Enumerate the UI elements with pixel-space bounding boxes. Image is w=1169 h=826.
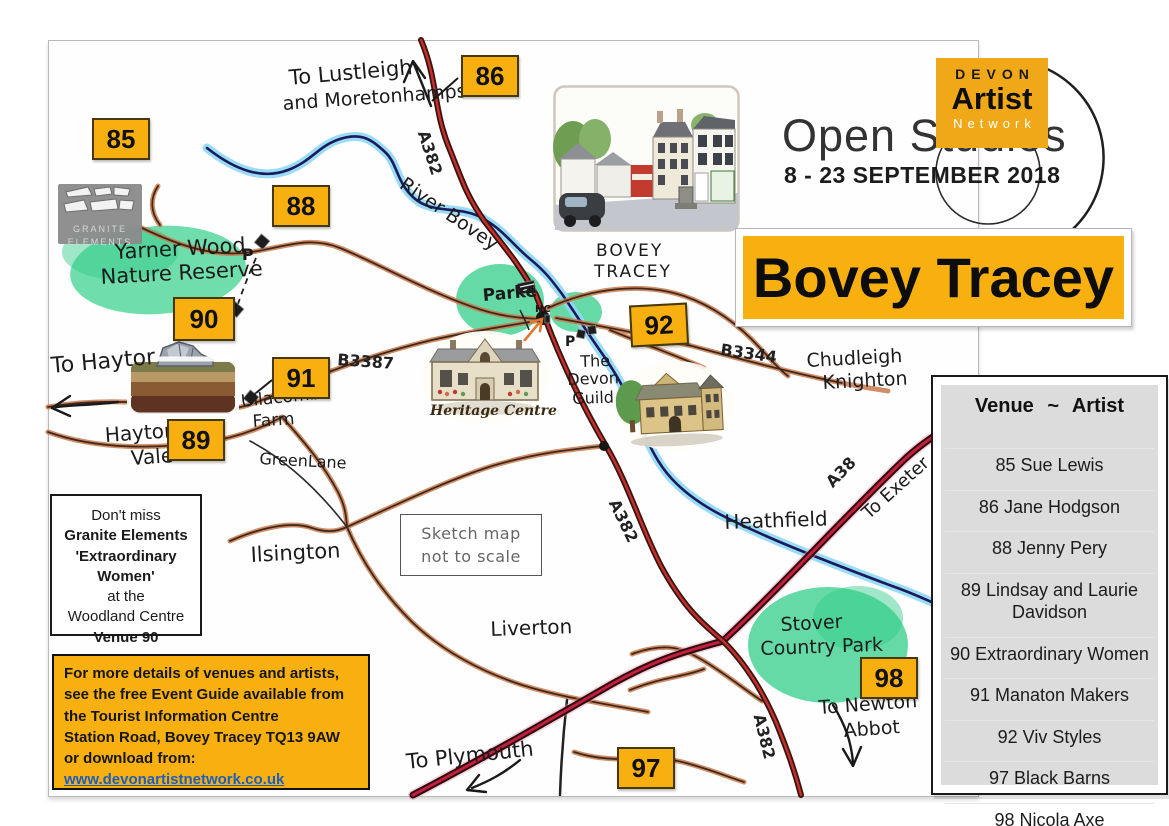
event-dates: 8 - 23 SEPTEMBER 2018 [784,162,1060,189]
label-farm: Farm [252,409,295,432]
venue-marker-90: 90 [173,297,235,341]
label-parking-guild: P [565,334,575,350]
venue-row-98: 98 Nicola Axe [945,803,1154,826]
dont-miss-line1: Don't miss [52,506,200,526]
venue-row-97: 97 Black Barns [945,761,1154,790]
label-hc: HC [535,304,551,315]
label-ilsington: Ilsington [250,538,341,567]
artist-network-badge: DEVON Artist Network [936,58,1048,148]
note-line2: not to scale [421,545,521,568]
town-banner-inner: Bovey Tracey [743,236,1124,319]
devon-artist-network-link[interactable]: www.devonartistnetwork.co.uk [64,771,284,788]
venue-marker-86: 86 [461,55,519,97]
granite-logo-line1: GRANITE [58,224,142,236]
dont-miss-line4: at the [52,587,200,607]
label-stover: Stover [780,611,843,636]
venue-marker-91: 91 [272,357,330,399]
event-guide-info-box: For more details of venues and artists, … [52,654,370,790]
venue-marker-92: 92 [629,303,689,348]
venue-marker-88: 88 [272,185,330,227]
label-b3387: B3387 [337,350,395,373]
venue-marker-85: 85 [92,118,150,160]
venue-row-88: 88 Jenny Pery [945,531,1154,560]
info-line2: see the free Event Guide available from [64,684,358,705]
label-abbot: Abbot [843,716,901,742]
not-to-scale-note: Sketch map not to scale [400,514,542,576]
info-line4: Station Road, Bovey Tracey TQ13 9AW [64,727,358,748]
dont-miss-line6: Venue 90 [52,628,200,648]
venue-row-86: 86 Jane Hodgson [945,490,1154,519]
label-parking-yarner: P [242,245,254,264]
heritage-centre-caption: Heritage Centre [430,403,557,419]
badge-artist-text: Artist [936,83,1048,114]
devon-guild-illustration [614,357,737,455]
page: Heritage Centre [0,0,1169,826]
venue-marker-97: 97 [617,747,675,789]
venue-marker-98: 98 [860,657,918,699]
dont-miss-line2: Granite Elements [52,526,200,546]
badge-network-text: Network [941,116,1048,131]
label-bovey: BOVEY [596,241,663,261]
label-heathfield: Heathfield [724,506,828,534]
info-line5: or download from: [64,748,358,769]
dont-miss-line5: Woodland Centre [52,607,200,627]
label-devon: Devon [567,368,619,389]
granite-elements-logo: GRANITE ELEMENTS [58,184,142,244]
label-haytor: Haytor [104,418,173,447]
venue-marker-89: 89 [167,419,225,461]
info-line3: the Tourist Information Centre [64,706,358,727]
info-line1: For more details of venues and artists, [64,663,358,684]
venue-row-91: 91 Manaton Makers [945,678,1154,707]
town-banner: Bovey Tracey [735,228,1132,327]
bovey-tracey-town-illustration [553,85,740,232]
label-guild: Guild [572,388,614,408]
venue-artist-list-inner: Venue ~ Artist 85 Sue Lewis 86 Jane Hodg… [941,385,1158,785]
label-tracey: TRACEY [594,262,672,282]
note-line1: Sketch map [421,522,521,545]
venue-row-89: 89 Lindsay and Laurie Davidson [945,573,1154,624]
venue-row-85: 85 Sue Lewis [945,448,1154,477]
town-banner-title: Bovey Tracey [753,245,1114,310]
label-liverton: Liverton [490,614,573,641]
label-knighton: Knighton [822,368,908,394]
granite-stones-icon [58,184,142,218]
dont-miss-box: Don't miss Granite Elements 'Extraordina… [50,494,202,636]
venue-row-90: 90 Extraordinary Women [945,637,1154,666]
venue-artist-list: Venue ~ Artist 85 Sue Lewis 86 Jane Hodg… [931,375,1168,795]
badge-devon-text: DEVON [942,66,1048,82]
venue-artist-header: Venue ~ Artist [945,395,1154,418]
venue-row-92: 92 Viv Styles [945,720,1154,749]
devon-artist-network-logo: Open Studios 8 - 23 SEPTEMBER 2018 DEVON… [760,30,1169,240]
dont-miss-line3: 'Extraordinary Women' [52,547,200,588]
